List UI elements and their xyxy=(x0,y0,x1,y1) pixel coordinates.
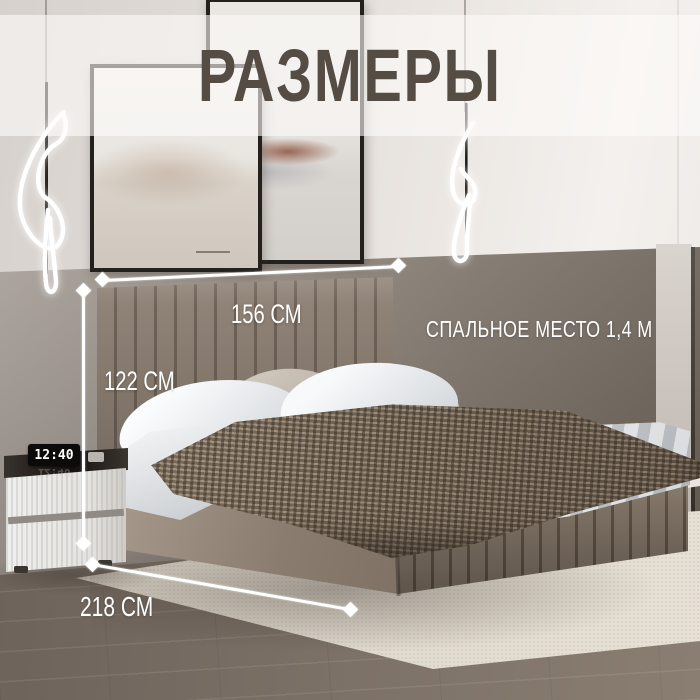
dimension-line-height xyxy=(82,290,85,543)
nightstand-foot xyxy=(14,566,28,573)
clock-time: 12:40 xyxy=(34,448,73,463)
room-scene: 12:40 12:40 156 СМ 122 СМ 218 СМ СПАЛЬНО… xyxy=(0,0,700,700)
clock-reflection: 12:40 xyxy=(28,465,80,479)
dimension-label-length: 218 СМ xyxy=(80,591,153,623)
artwork-signature xyxy=(196,251,230,253)
page-title: РАЗМЕРЫ xyxy=(198,33,502,118)
nightstand-object xyxy=(88,452,104,462)
neon-tube-left-tail xyxy=(45,210,56,292)
dimension-label-width: 156 СМ xyxy=(231,299,302,330)
title-band: РАЗМЕРЫ xyxy=(0,15,700,136)
dimension-label-height: 122 СМ xyxy=(104,366,175,397)
sleeping-area-label: СПАЛЬНОЕ МЕСТО 1,4 М xyxy=(426,316,653,343)
digital-clock: 12:40 xyxy=(28,444,80,466)
